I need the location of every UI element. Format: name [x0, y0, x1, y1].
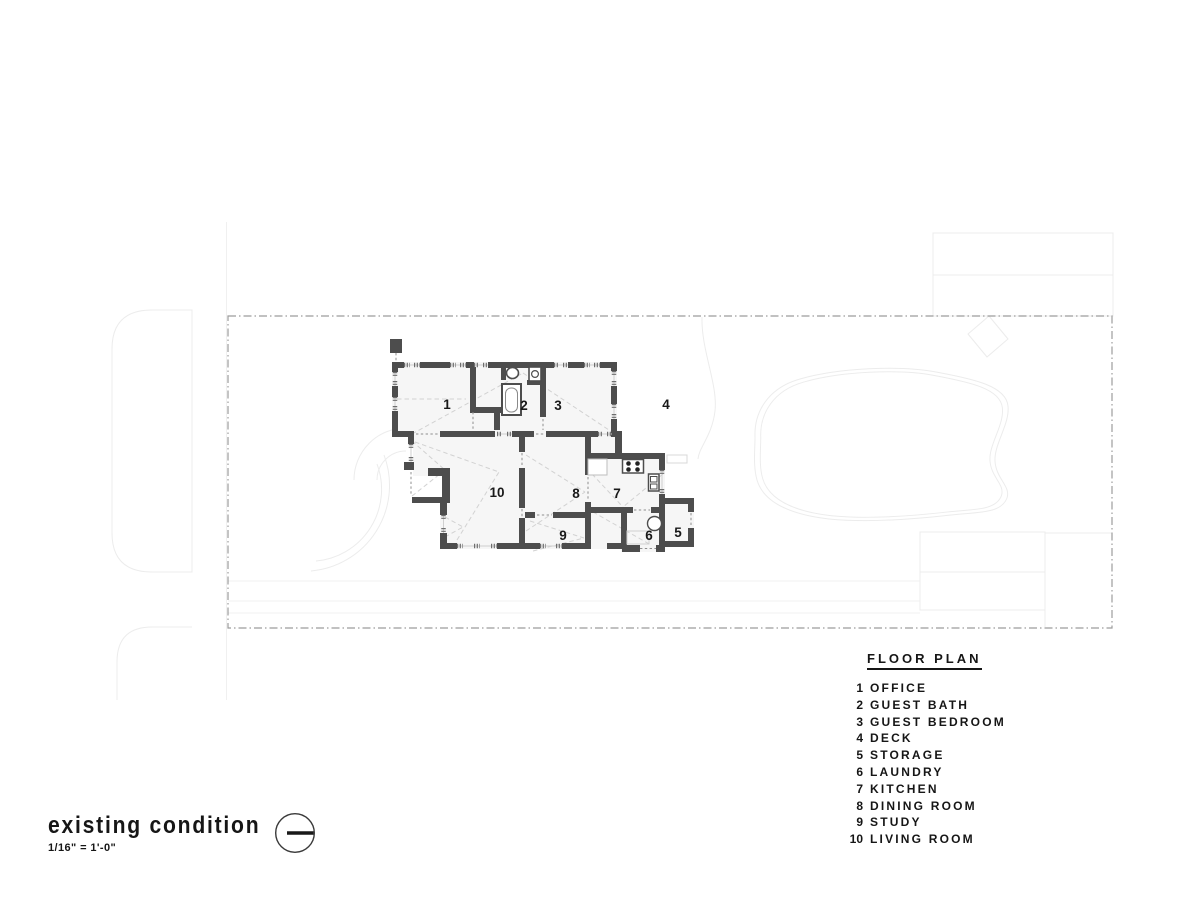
vanity-sink — [529, 367, 541, 381]
site-diamond-marker — [968, 316, 1008, 357]
legend-item-number: 10 — [845, 832, 863, 846]
legend-item: 4DECK — [845, 731, 1006, 748]
legend-item-label: LIVING ROOM — [870, 832, 975, 846]
legend-item-label: GUEST BATH — [870, 698, 969, 712]
floor-plan-legend: FLOOR PLAN 1OFFICE 2GUEST BATH 3GUEST BE… — [845, 650, 1006, 849]
drawing-title: existing condition — [48, 813, 240, 839]
driveway-arcs — [311, 428, 406, 571]
room-label-kitchen: 7 — [613, 486, 621, 501]
drawing-scale: 1/16" = 1'-0" — [48, 842, 266, 854]
legend-title: FLOOR PLAN — [867, 651, 982, 670]
legend-item: 3GUEST BEDROOM — [845, 715, 1006, 732]
legend-item: 8DINING ROOM — [845, 799, 1006, 816]
title-block-text: existing condition 1/16" = 1'-0" — [48, 813, 266, 854]
legend-item-label: LAUNDRY — [870, 765, 944, 779]
legend-item: 10LIVING ROOM — [845, 832, 1006, 849]
room-label-living-room: 10 — [489, 485, 504, 500]
legend-item-label: DECK — [870, 731, 913, 745]
legend-item-number: 8 — [845, 799, 863, 813]
legend-item: 6LAUNDRY — [845, 765, 1006, 782]
legend-item-label: DINING ROOM — [870, 799, 977, 813]
room-label-dining-room: 8 — [572, 486, 580, 501]
room-label-study: 9 — [559, 528, 567, 543]
legend-item-label: OFFICE — [870, 681, 927, 695]
legend-item-number: 9 — [845, 815, 863, 829]
legend-item-number: 1 — [845, 681, 863, 695]
legend-item-label: GUEST BEDROOM — [870, 715, 1006, 729]
street-curb — [112, 310, 192, 572]
legend-item-number: 7 — [845, 782, 863, 796]
legend-item-label: STUDY — [870, 815, 922, 829]
pool — [755, 368, 1009, 520]
legend-item-number: 4 — [845, 731, 863, 745]
room-label-storage: 5 — [674, 525, 682, 540]
legend-item: 2GUEST BATH — [845, 698, 1006, 715]
legend-item-number: 5 — [845, 748, 863, 762]
legend-item: 1OFFICE — [845, 681, 1006, 698]
title-block: existing condition 1/16" = 1'-0" — [48, 812, 316, 854]
neighbor-building-bottom — [920, 532, 1112, 627]
street-curb-lower — [117, 627, 192, 700]
legend-item: 5STORAGE — [845, 748, 1006, 765]
legend-item: 7KITCHEN — [845, 782, 1006, 799]
kitchen-counter — [588, 459, 607, 475]
site-plan-drawing: 1 2 3 4 10 8 7 9 6 5 — [0, 0, 1200, 900]
legend-item-label: KITCHEN — [870, 782, 939, 796]
room-label-deck: 4 — [662, 397, 670, 412]
legend-item-number: 6 — [845, 765, 863, 779]
deck-steps — [667, 455, 687, 463]
gate-post — [390, 339, 402, 353]
legend-item-number: 3 — [845, 715, 863, 729]
legend-item-number: 2 — [845, 698, 863, 712]
room-label-guest-bedroom: 3 — [554, 398, 562, 413]
neighbor-building-top — [933, 233, 1113, 316]
stove — [623, 460, 644, 474]
north-arrow-icon — [274, 812, 316, 854]
legend-item-label: STORAGE — [870, 748, 945, 762]
room-label-office: 1 — [443, 397, 451, 412]
toilet — [501, 366, 519, 380]
legend-item: 9STUDY — [845, 815, 1006, 832]
kitchen-sink — [649, 474, 660, 491]
bathtub — [502, 384, 521, 415]
room-label-laundry: 6 — [645, 528, 653, 543]
legend-items: 1OFFICE 2GUEST BATH 3GUEST BEDROOM 4DECK… — [845, 681, 1006, 849]
deck-edge-path — [698, 317, 715, 459]
room-label-guest-bath: 2 — [520, 398, 528, 413]
